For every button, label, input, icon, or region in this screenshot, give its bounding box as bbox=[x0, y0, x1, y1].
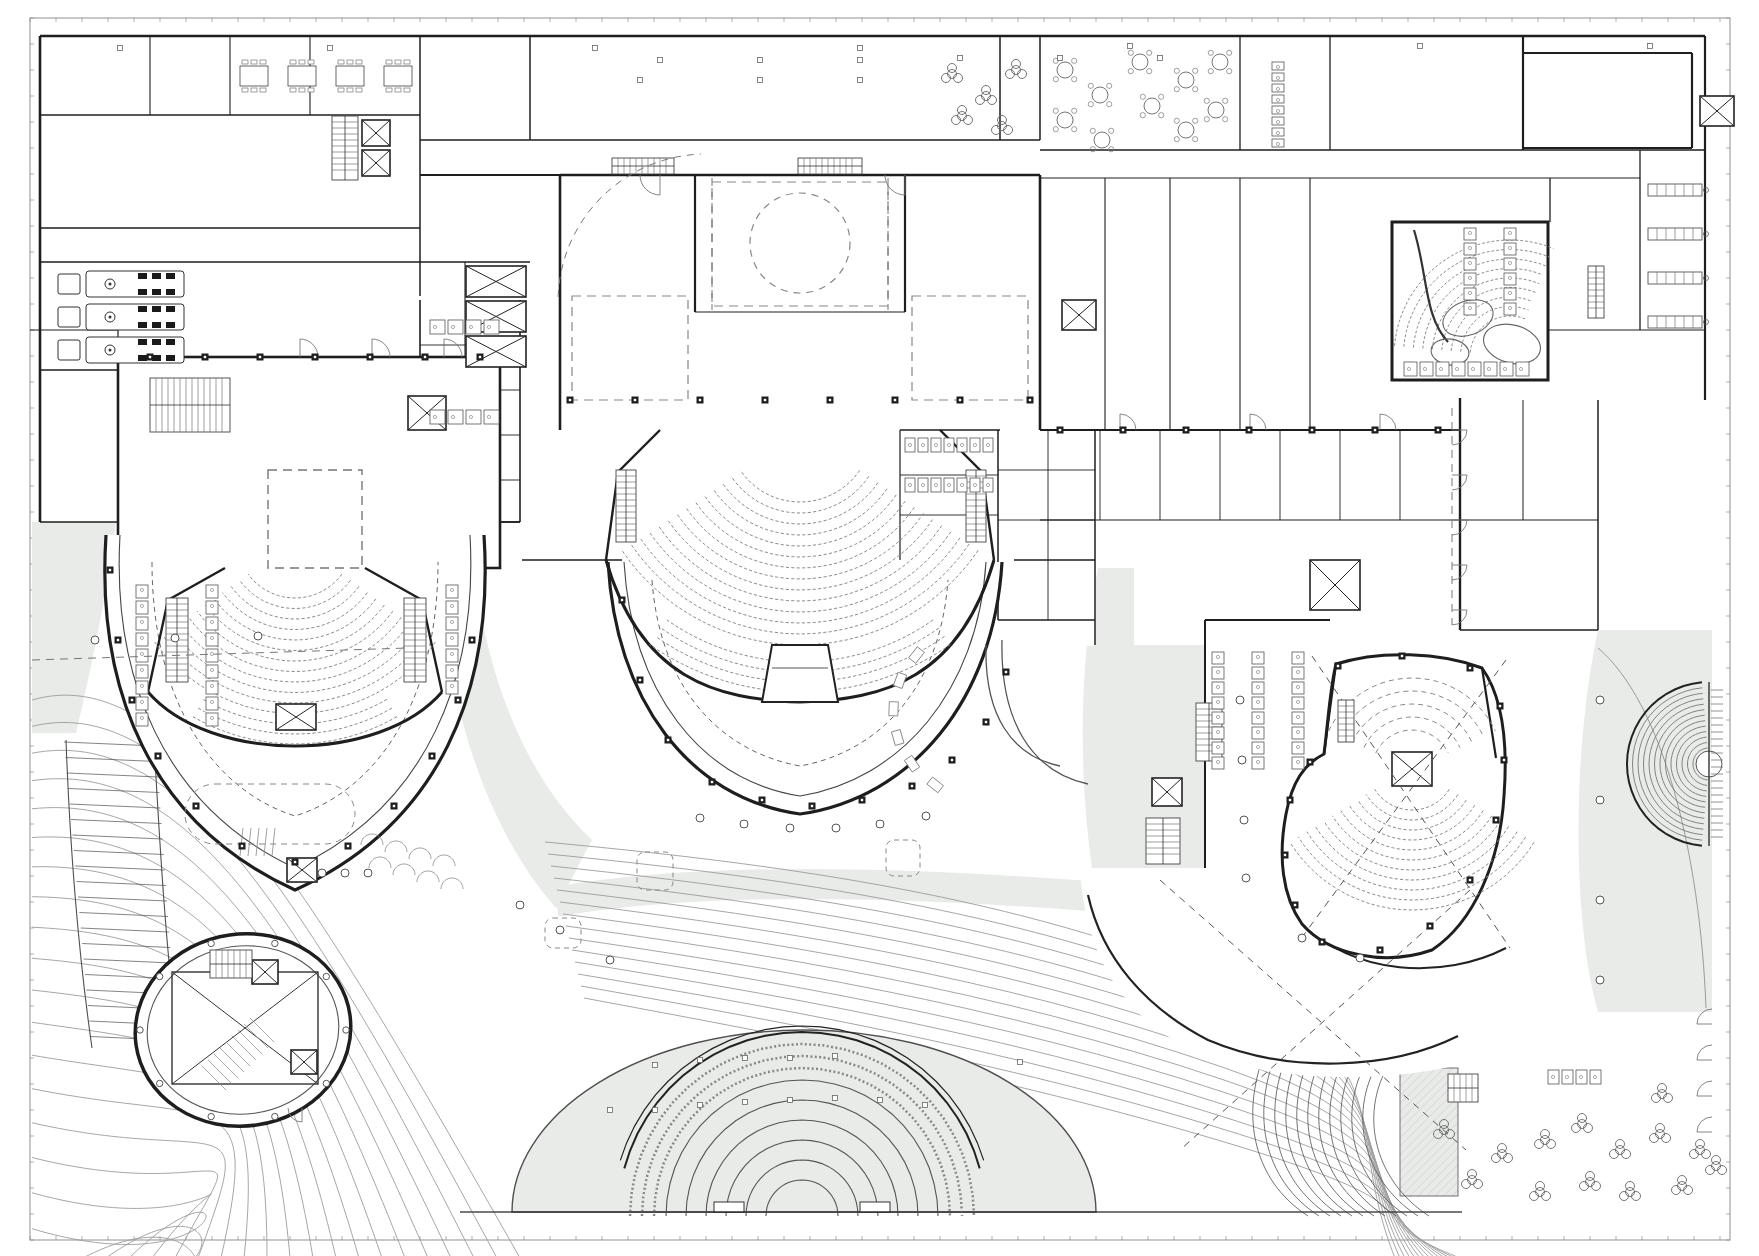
west-concert-hall bbox=[105, 357, 500, 890]
floor-plan-sheet bbox=[0, 0, 1759, 1256]
tree-cluster bbox=[1650, 1124, 1671, 1143]
south-plaza-amphitheatre bbox=[512, 1026, 1096, 1216]
tree-cluster bbox=[1572, 1114, 1593, 1133]
tree-cluster bbox=[1620, 1182, 1641, 1201]
tree-cluster bbox=[1690, 1140, 1711, 1159]
floor-plan-drawing bbox=[0, 0, 1759, 1256]
south-semicircle-plaza bbox=[512, 1030, 1096, 1212]
tree-cluster bbox=[1530, 1182, 1551, 1201]
tree-cluster bbox=[1652, 1084, 1673, 1103]
tree-cluster bbox=[1610, 1140, 1631, 1159]
tree-cluster bbox=[1706, 1156, 1727, 1175]
door-swing bbox=[1697, 1045, 1712, 1060]
plaza-south-band bbox=[556, 884, 1090, 902]
tree-cluster bbox=[1580, 1172, 1601, 1191]
tree-cluster bbox=[1462, 1170, 1483, 1189]
tree-cluster bbox=[1672, 1176, 1693, 1195]
tree-cluster bbox=[1492, 1144, 1513, 1163]
plaza-east-strip bbox=[1083, 568, 1205, 893]
door-swing bbox=[1697, 1117, 1712, 1132]
door-swing bbox=[1697, 1081, 1712, 1096]
tree-cluster bbox=[1535, 1130, 1556, 1149]
